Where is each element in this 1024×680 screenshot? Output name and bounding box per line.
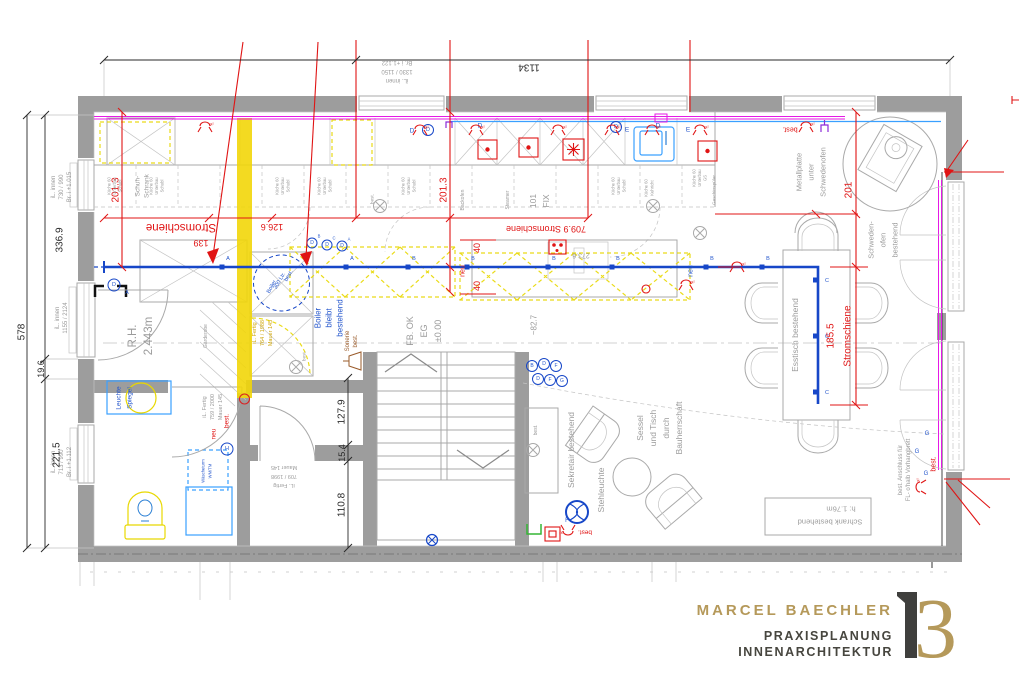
corridor-door (260, 406, 315, 461)
marker-e: E (625, 127, 630, 134)
marker-a: A (350, 256, 354, 262)
dim-273-6: 273.6 (572, 252, 590, 259)
marker-e: E (686, 127, 691, 134)
secretary-label: Sekretair bestehend (566, 412, 576, 488)
kitchen-unit-label: Küche 60 (317, 176, 322, 194)
best-label: best. (302, 351, 307, 361)
svg-text:1155 / 2124: 1155 / 2124 (63, 302, 69, 334)
connection-note: best. Anschluss für (898, 445, 904, 495)
svg-text:D: D (310, 240, 314, 246)
floor-level: FB. OK (405, 316, 415, 346)
svg-text:iL. innen: iL. innen (386, 77, 409, 83)
window-left-bottom (70, 423, 98, 485)
svg-text:Schubl: Schubl (160, 180, 165, 193)
svg-text:Br. i +1.015: Br. i +1.015 (67, 171, 73, 202)
best-label: best. (578, 529, 592, 536)
logo-name: MARCEL BAECHLER (697, 602, 893, 619)
svg-text:D: D (340, 243, 344, 249)
stairs (377, 352, 515, 540)
marker-b: B (616, 256, 620, 262)
fix-label: 101 (528, 194, 538, 208)
logo-sub2: INNENARCHITEKTUR (738, 645, 893, 659)
window-left-top (70, 158, 98, 212)
dim-40: 40 (472, 243, 482, 253)
wall-stairs-left (363, 352, 377, 546)
living-room (427, 117, 945, 546)
svg-text:GS: GS (703, 175, 708, 181)
svg-text:Unterbau: Unterbau (616, 177, 621, 195)
shoe-cabinet-label: Schuh- (135, 176, 142, 197)
kitchen-unit-label: Küche 60 (107, 176, 112, 194)
steamer-icon (519, 138, 538, 157)
marker-b: B (552, 256, 556, 262)
kitchen-unit-label: Küche 60 (149, 176, 154, 194)
svg-text:B: B (318, 234, 321, 239)
svg-text:730 / 990: 730 / 990 (59, 174, 65, 200)
oven-label: Backofen (460, 189, 466, 210)
window-top-1 (357, 94, 446, 114)
svg-text:Unterbau: Unterbau (154, 177, 159, 195)
door-759-label: iL. Fertig (202, 396, 208, 417)
room-height: R.H. (127, 325, 139, 348)
svg-text:Schrank bestehend: Schrank bestehend (798, 518, 863, 527)
window-top-3 (782, 94, 877, 114)
svg-text:F: F (548, 377, 551, 383)
window-label: iL. innen (55, 307, 61, 330)
svg-text:iL. Fertig: iL. Fertig (273, 482, 294, 488)
svg-text:Schubl: Schubl (286, 180, 291, 193)
swedish-stove (843, 117, 937, 211)
svg-text:Bauherrschaft: Bauherrschaft (674, 401, 684, 455)
svg-text:Unterbau: Unterbau (406, 177, 411, 195)
svg-text:B: B (530, 363, 534, 369)
svg-text:FIX: FIX (541, 194, 551, 208)
neu-label: neu (688, 265, 695, 277)
svg-text:C: C (332, 236, 335, 241)
marker-g: G (915, 449, 920, 455)
svg-text:bleibt: bleibt (325, 308, 334, 328)
door-709-label: Mauer 145 (271, 464, 297, 470)
yellow-highlight-band (237, 118, 252, 398)
svg-text:759 / 2000: 759 / 2000 (210, 394, 216, 420)
gs-label: Küche 60 (692, 168, 697, 186)
svg-text:A: A (348, 237, 351, 242)
marker-b: B (412, 256, 416, 262)
window-right-band (900, 180, 970, 472)
svg-text:G: G (560, 378, 564, 384)
svg-text:Schubl: Schubl (118, 180, 123, 193)
dim-total-width: 1134 (518, 62, 540, 73)
metal-plate-label: Metallplatte (795, 153, 804, 191)
floor-lamp-label: Stehleuchte (596, 467, 606, 512)
green-mark (527, 524, 541, 534)
logo-mark-3: 3 (914, 580, 957, 676)
dim-201-3-mid: 201.3 (439, 177, 450, 202)
washer-tower (186, 450, 232, 535)
washer-label: Wäscheturm (201, 459, 206, 483)
kitchen-unit-label: Küche 60 (611, 176, 616, 194)
svg-text:ofen: ofen (879, 233, 888, 248)
svg-text:bestehend: bestehend (336, 299, 345, 336)
magenta-line (94, 117, 845, 120)
window-label: iL. innen (51, 176, 57, 199)
svg-text:Mauer 145: Mauer 145 (268, 320, 274, 346)
svg-text:Kehricht: Kehricht (650, 179, 655, 195)
stromschiene-label: Stromschiene (843, 305, 854, 367)
best-label: best. (533, 425, 539, 436)
marker-c: C (825, 390, 829, 396)
dim-110-8: 110.8 (337, 492, 348, 517)
svg-text:Mauer 145: Mauer 145 (218, 394, 224, 420)
dim-126-6: 126.6 (261, 222, 284, 232)
marker-a: A (226, 256, 230, 262)
armchair-note: Sessel (635, 415, 645, 441)
dim-15-4: 15.4 (337, 444, 347, 462)
marker-d-circled: D (112, 282, 116, 288)
dining-table-label: Esstisch bestehend (790, 298, 800, 372)
secretary-desk (525, 408, 558, 493)
kehricht-label: Küche 60 (644, 178, 649, 196)
kitchen-unit-label: Küche 60 (401, 176, 406, 194)
yellow-markup (100, 118, 690, 404)
stove-label: Schweden- (867, 221, 876, 259)
entry-door (95, 286, 168, 360)
dim-201-right: 201 (844, 181, 855, 198)
wc-icon (125, 492, 165, 539)
marker-b: B (471, 256, 475, 262)
window-top-2 (594, 94, 689, 114)
power-rail (104, 267, 818, 404)
marker-f: F (565, 518, 569, 524)
svg-text:unter: unter (807, 163, 816, 181)
svg-text:bestehend: bestehend (891, 222, 900, 257)
floor-lamp-icon (566, 501, 588, 523)
marker-h-circled: H (225, 446, 229, 452)
svg-text:709 / 1998: 709 / 1998 (271, 473, 297, 479)
svg-text:F: F (554, 363, 557, 369)
logo-sub1: PRAXISPLANUNG (764, 629, 893, 643)
dim-19-6: 19.6 (36, 360, 46, 378)
kitchen-unit-label: Küche 60 (275, 176, 280, 194)
wall-bath-top-b (246, 380, 363, 393)
stromschiene-label: Stromschiene (146, 221, 216, 233)
neu-label: neu (460, 265, 467, 277)
side-table (613, 458, 651, 496)
marker-b: B (766, 256, 770, 262)
steamer-label: Steamer (505, 190, 511, 209)
wall-mid-a (250, 445, 258, 461)
svg-text:Br. i +1.112: Br. i +1.112 (67, 446, 73, 477)
svg-text:Unterbau: Unterbau (697, 169, 702, 187)
svg-text:best.: best. (283, 269, 294, 283)
svg-text:Spiegel: Spiegel (127, 387, 134, 409)
dishwasher-icon (698, 141, 717, 161)
metal-plate-arc (795, 212, 837, 233)
dim-185-5: 185.5 (826, 323, 837, 348)
dim-139: 139 (193, 238, 208, 248)
svg-text:FL- o'halb Vorhangbrett: FL- o'halb Vorhangbrett (906, 438, 912, 501)
svg-text:durch: durch (661, 417, 671, 439)
svg-text:Unterbau: Unterbau (322, 177, 327, 195)
socket-box-icon (545, 527, 560, 541)
svg-text:Unterbau: Unterbau (112, 177, 117, 195)
svg-text:Schubl: Schubl (622, 180, 627, 193)
mirror-light-label: Leuchte (116, 386, 123, 410)
best-label: best. (931, 456, 938, 471)
doorbell-label: Sonerie (345, 330, 351, 351)
best-label: best. (782, 126, 797, 133)
dim-total-height: 578 (17, 323, 28, 340)
yellow-x-band-2 (460, 253, 690, 300)
marker-c: C (825, 278, 829, 284)
oven-icon (478, 140, 497, 159)
best-label: best. (370, 194, 375, 204)
dim-336-9: 336.9 (55, 227, 66, 252)
svg-text:±0.00: ±0.00 (433, 320, 443, 342)
svg-text:2.443m: 2.443m (143, 317, 155, 355)
svg-text:D: D (536, 376, 540, 382)
svg-text:WM/TM: WM/TM (208, 463, 213, 478)
svg-text:EG: EG (419, 324, 429, 337)
marker-g: G (924, 471, 929, 477)
best-label: best. (224, 414, 231, 428)
dim-127-9: 127.9 (337, 399, 348, 424)
opening-764-label: iL. Fertig (252, 322, 258, 343)
sink-icon (634, 127, 674, 161)
marker-g: G (925, 431, 930, 437)
svg-text:Schubl: Schubl (412, 180, 417, 193)
svg-text:764 / 1988: 764 / 1988 (260, 320, 266, 346)
marker-a: A (125, 290, 129, 296)
yellow-x-band-1 (290, 247, 455, 297)
dim-221-5: 221.5 (52, 442, 63, 467)
dishwasher-label: Geschirrspüler (712, 175, 717, 205)
hob-icon (563, 139, 584, 160)
floor-plan-canvas: x² (0, 0, 1024, 680)
sonerie-icon (343, 352, 361, 370)
svg-text:Schubl: Schubl (328, 180, 333, 193)
svg-text:Schwedenofen: Schwedenofen (819, 147, 828, 197)
cabinet-box (765, 498, 871, 535)
svg-text:best.: best. (353, 334, 359, 347)
svg-text:D: D (542, 361, 546, 367)
svg-text:Unterbau: Unterbau (280, 177, 285, 195)
dim-709-9: 709.9 Stromschiene (506, 224, 586, 234)
logo: MARCEL BAECHLER PRAXISPLANUNG INNENARCHI… (697, 580, 957, 676)
neu-label: neu (211, 428, 218, 439)
garderobe-label: Garderobe (203, 324, 209, 348)
marker-b: B (710, 256, 714, 262)
cabinet-label: h: 1.76m (826, 505, 855, 514)
dim-82-7: ~82.7 (530, 314, 539, 335)
svg-text:D: D (325, 242, 329, 248)
electrical-blue: A A B B B B B B C C C D A D D D D E D E … (94, 122, 930, 525)
svg-text:1330 / 1150: 1330 / 1150 (381, 68, 413, 74)
svg-text:und Tisch: und Tisch (648, 410, 658, 447)
boiler-note: Boiler (314, 307, 323, 328)
wall-bath-right (237, 393, 250, 546)
dim-40: 40 (472, 281, 482, 291)
marker-cluster: B D F D F G (527, 359, 568, 387)
